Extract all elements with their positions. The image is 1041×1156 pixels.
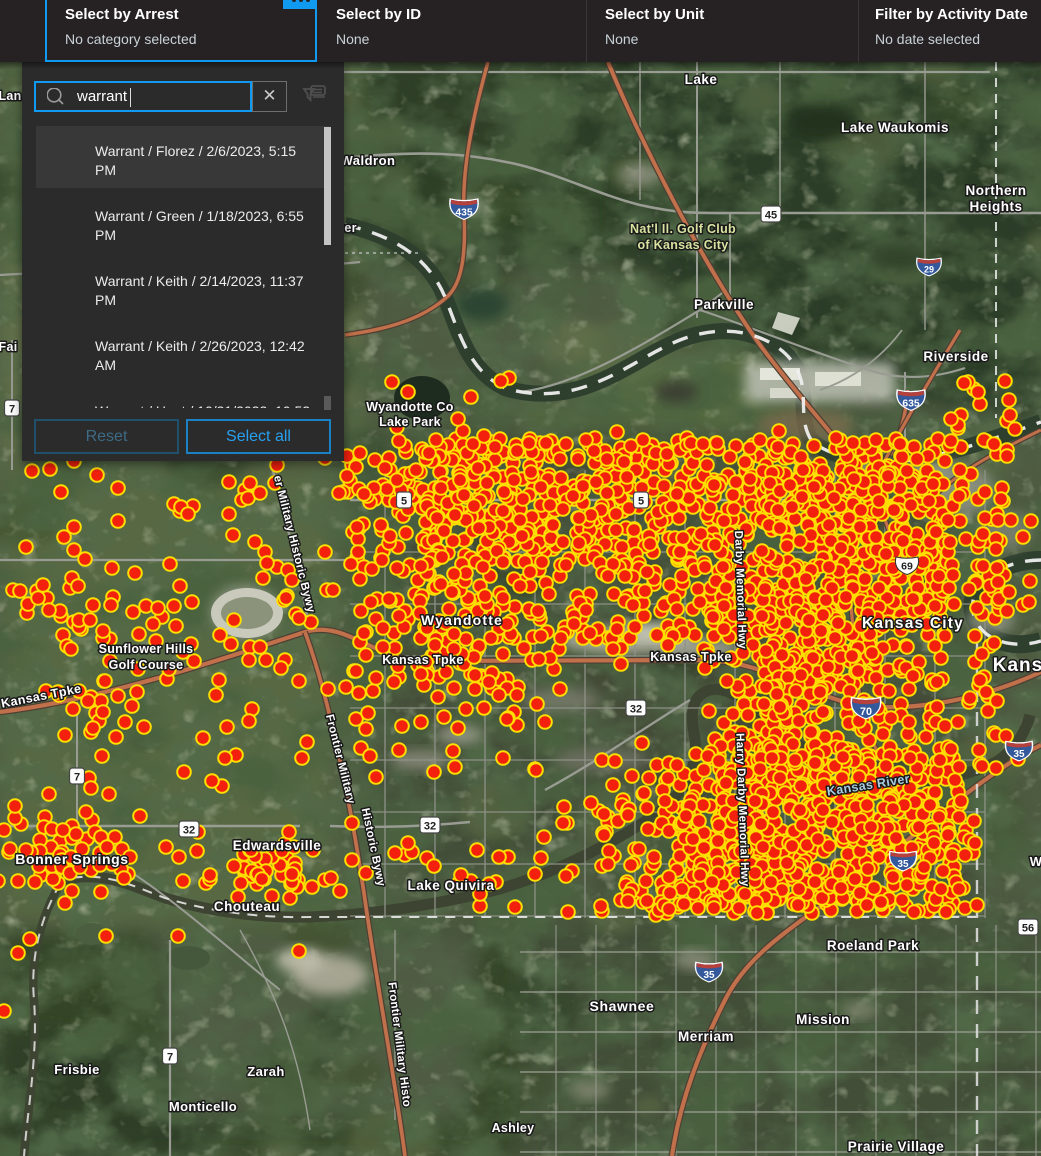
svg-text:32: 32 [183, 825, 195, 837]
svg-text:Golf Course: Golf Course [109, 658, 184, 672]
svg-text:Mission: Mission [796, 1012, 850, 1027]
svg-text:Lake Park: Lake Park [379, 415, 441, 429]
svg-text:70: 70 [860, 706, 872, 718]
svg-text:Lake Waukomis: Lake Waukomis [841, 120, 949, 135]
svg-text:Shawnee: Shawnee [590, 998, 655, 1014]
svg-text:7: 7 [167, 1052, 173, 1064]
svg-text:32: 32 [630, 704, 642, 716]
svg-text:Parkville: Parkville [694, 297, 754, 312]
svg-text:Bonner Springs: Bonner Springs [15, 851, 128, 867]
svg-text:45: 45 [765, 210, 777, 222]
svg-text:635: 635 [902, 398, 920, 409]
svg-text:Roeland Park: Roeland Park [827, 938, 919, 953]
svg-text:Fai: Fai [0, 340, 17, 354]
svg-text:Kansas City: Kansas City [862, 615, 964, 632]
svg-text:69: 69 [901, 561, 913, 573]
svg-text:Ashley: Ashley [492, 1121, 535, 1135]
svg-text:Lake: Lake [685, 72, 718, 87]
svg-text:35: 35 [703, 970, 715, 981]
svg-text:56: 56 [1022, 923, 1034, 935]
svg-text:Northern: Northern [966, 183, 1027, 198]
svg-text:35: 35 [1013, 749, 1025, 760]
svg-text:Lan: Lan [0, 89, 22, 103]
svg-text:435: 435 [455, 207, 473, 218]
svg-text:Lake Quivira: Lake Quivira [407, 878, 494, 893]
svg-text:Kansas Tpke: Kansas Tpke [650, 650, 732, 664]
svg-text:35: 35 [897, 859, 909, 870]
svg-text:Riverside: Riverside [923, 349, 988, 364]
svg-text:5: 5 [638, 496, 644, 508]
svg-text:Edwardsville: Edwardsville [233, 838, 322, 853]
svg-text:Sunflower Hills: Sunflower Hills [99, 642, 194, 656]
svg-text:Kans: Kans [993, 655, 1041, 676]
svg-text:Heights: Heights [969, 199, 1022, 214]
svg-text:Nat'l Il. Golf Club: Nat'l Il. Golf Club [630, 222, 736, 236]
svg-text:Prairie Village: Prairie Village [848, 1139, 945, 1154]
svg-text:of Kansas City: of Kansas City [637, 238, 728, 252]
svg-text:W: W [1030, 854, 1041, 869]
svg-text:Kansas Tpke: Kansas Tpke [382, 653, 464, 667]
svg-text:5: 5 [401, 496, 407, 508]
svg-text:Wyandotte Co: Wyandotte Co [366, 400, 453, 414]
svg-text:Zarah: Zarah [247, 1064, 284, 1079]
svg-text:Merriam: Merriam [678, 1029, 734, 1044]
svg-text:Monticello: Monticello [169, 1099, 237, 1114]
svg-text:Chouteau: Chouteau [214, 899, 280, 914]
svg-text:32: 32 [424, 821, 436, 833]
svg-text:29: 29 [924, 265, 934, 275]
svg-text:7: 7 [74, 772, 80, 784]
svg-text:Wyandotte: Wyandotte [421, 612, 503, 628]
svg-text:Frisbie: Frisbie [54, 1062, 99, 1077]
svg-text:7: 7 [9, 404, 15, 416]
svg-text:Waldron: Waldron [340, 153, 395, 168]
